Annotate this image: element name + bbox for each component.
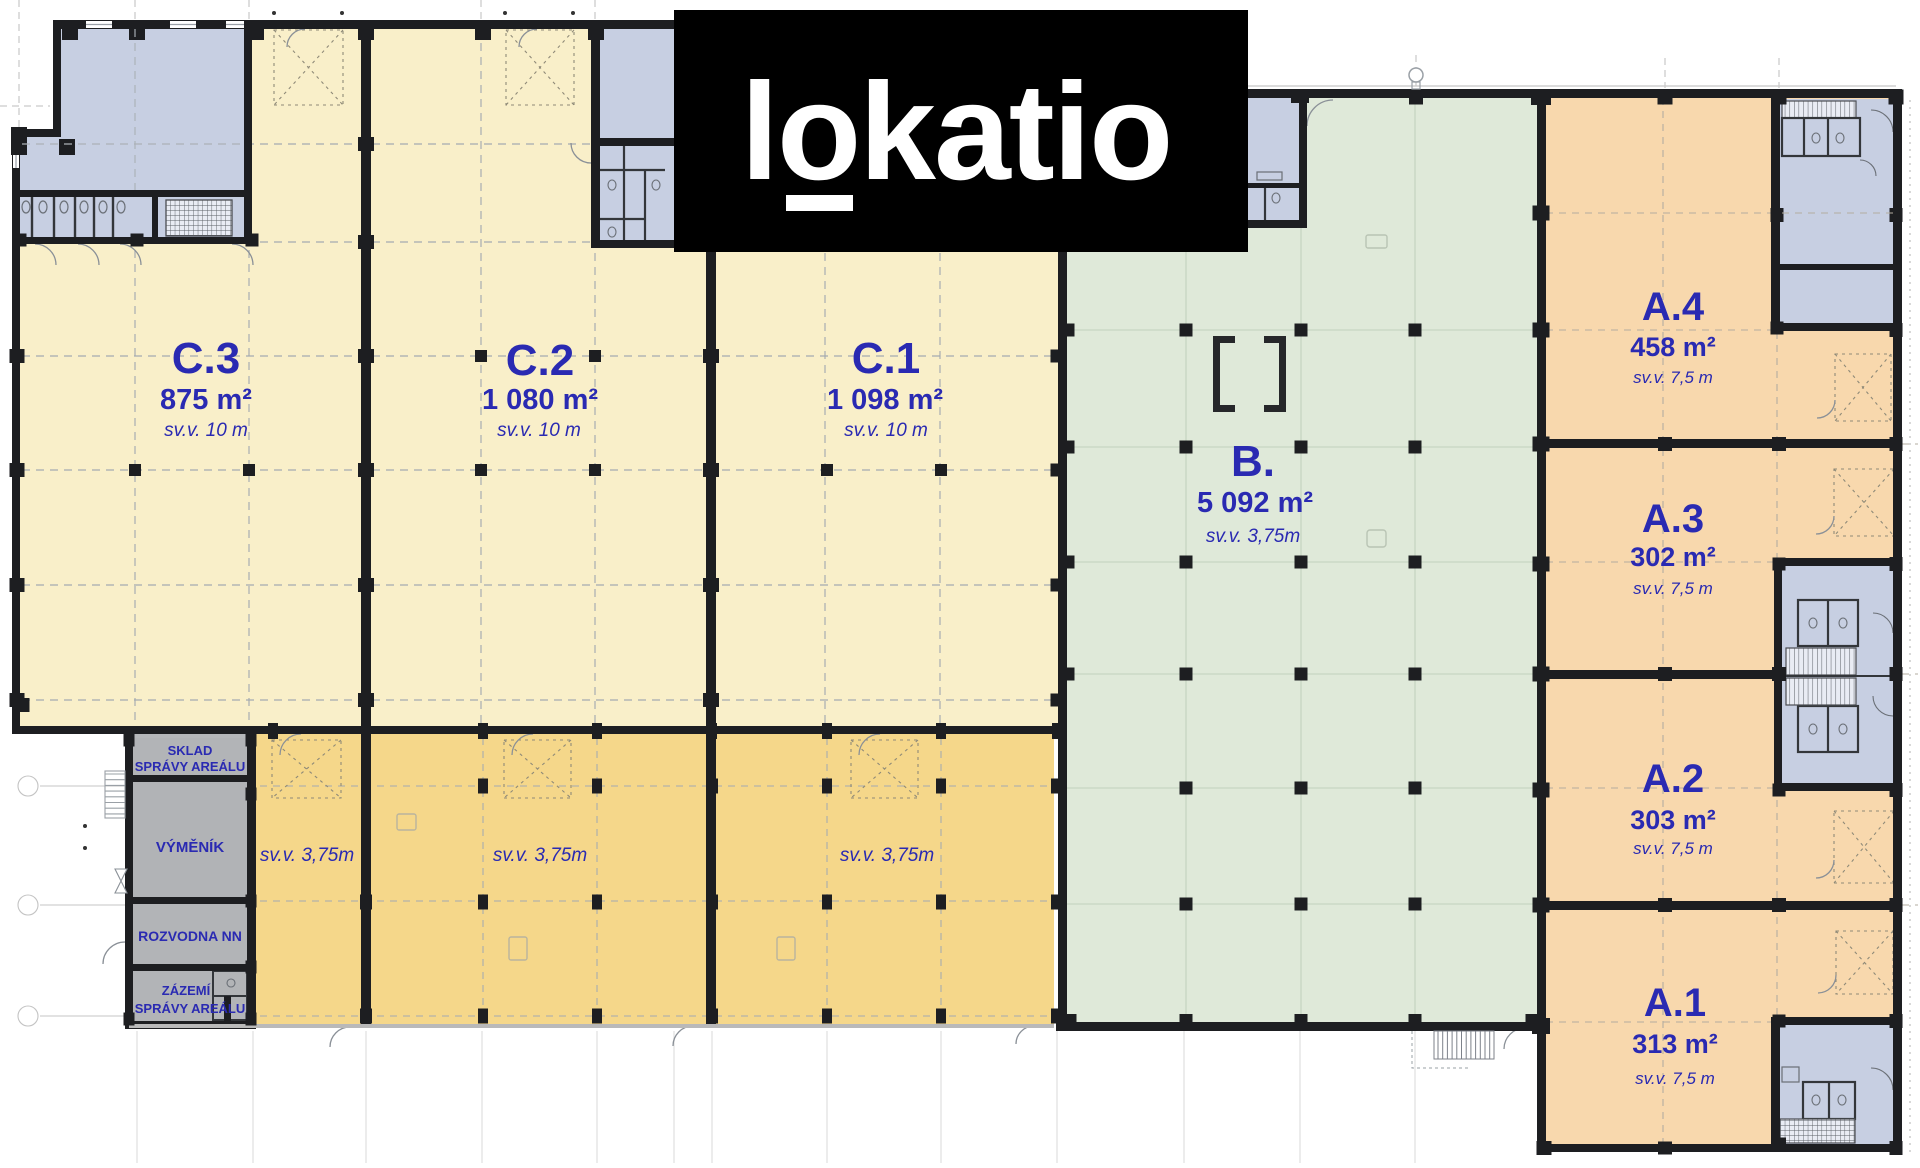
- svg-text:sv.v. 7,5 m: sv.v. 7,5 m: [1635, 1069, 1715, 1088]
- svg-text:SPRÁVY AREÁLU: SPRÁVY AREÁLU: [135, 759, 246, 774]
- svg-text:sv.v. 10 m: sv.v. 10 m: [164, 420, 248, 441]
- svg-text:302 m²: 302 m²: [1630, 542, 1716, 572]
- svg-text:ROZVODNA NN: ROZVODNA NN: [138, 928, 242, 944]
- svg-text:sv.v. 3,75m: sv.v. 3,75m: [840, 845, 934, 866]
- svg-text:sv.v. 3,75m: sv.v. 3,75m: [1206, 526, 1300, 547]
- svg-text:A.1: A.1: [1644, 981, 1706, 1025]
- svg-text:sv.v. 10 m: sv.v. 10 m: [497, 420, 581, 441]
- svg-text:458 m²: 458 m²: [1630, 332, 1716, 362]
- svg-text:1 098 m²: 1 098 m²: [827, 384, 943, 416]
- svg-text:B.: B.: [1231, 437, 1275, 486]
- svg-text:ZÁZEMÍ: ZÁZEMÍ: [162, 983, 211, 998]
- svg-text:sv.v. 3,75m: sv.v. 3,75m: [493, 845, 587, 866]
- svg-text:A.4: A.4: [1642, 285, 1705, 329]
- svg-text:SKLAD: SKLAD: [168, 743, 213, 758]
- svg-text:sv.v. 7,5 m: sv.v. 7,5 m: [1633, 839, 1713, 858]
- svg-text:303 m²: 303 m²: [1630, 805, 1716, 835]
- svg-text:sv.v. 7,5 m: sv.v. 7,5 m: [1633, 579, 1713, 598]
- svg-text:5 092 m²: 5 092 m²: [1197, 487, 1313, 519]
- svg-text:sv.v. 10 m: sv.v. 10 m: [844, 420, 928, 441]
- svg-text:lokatio: lokatio: [741, 55, 1172, 209]
- svg-text:VÝMĚNÍK: VÝMĚNÍK: [156, 838, 225, 856]
- svg-text:sv.v. 3,75m: sv.v. 3,75m: [260, 845, 354, 866]
- svg-text:C.2: C.2: [506, 336, 574, 385]
- svg-text:313 m²: 313 m²: [1632, 1029, 1718, 1059]
- svg-text:A.3: A.3: [1642, 497, 1704, 541]
- svg-text:sv.v. 7,5 m: sv.v. 7,5 m: [1633, 368, 1713, 387]
- svg-text:A.2: A.2: [1642, 757, 1704, 801]
- svg-text:C.3: C.3: [172, 334, 240, 383]
- svg-text:875 m²: 875 m²: [160, 384, 252, 416]
- svg-text:1 080 m²: 1 080 m²: [482, 384, 598, 416]
- svg-text:C.1: C.1: [852, 334, 920, 383]
- svg-text:SPRÁVY AREÁLU: SPRÁVY AREÁLU: [135, 1001, 246, 1016]
